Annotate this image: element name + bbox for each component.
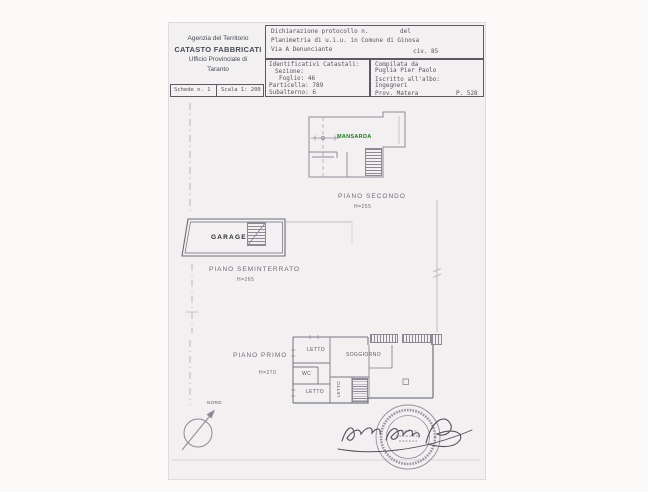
garage-stairs (247, 222, 266, 246)
scanned-cadastral-document: Agenzia del Territorio CATASTO FABBRICAT… (0, 0, 648, 492)
room-letto-vertical: LETTO (336, 381, 341, 397)
balcony-railing-left (370, 334, 398, 343)
alignment-line (433, 200, 441, 332)
piano-primo-height: H=270 (259, 370, 276, 376)
piano-secondo-height: H=255 (354, 204, 371, 210)
piano-seminterrato-label: PIANO SEMINTERRATO (209, 266, 300, 273)
boundary-dash-lines (186, 103, 198, 405)
balcony-railing-right (402, 334, 431, 343)
piano-primo-label: PIANO PRIMO (233, 352, 287, 359)
garage-room-label: GARAGE (211, 234, 247, 241)
mansarda-room-label: MANSARDA (337, 134, 371, 140)
mansarda-stairs (365, 148, 382, 176)
room-letto-top: LETTO (307, 347, 325, 353)
floorplan-drawing (0, 0, 648, 492)
compass-nord-label: NORD (207, 400, 222, 405)
piano-secondo-label: PIANO SECONDO (338, 193, 406, 200)
signature (338, 419, 472, 452)
balcony-end-pillar (431, 334, 442, 345)
mansarda-plan-outline (309, 112, 405, 177)
professional-stamp-icon (376, 405, 440, 469)
compass-icon (182, 410, 215, 451)
room-letto-bottom: LETTO (306, 389, 324, 395)
room-wc: WC (302, 371, 311, 377)
garage-plan-outline (182, 219, 352, 256)
room-soggiorno: SOGGIORNO (346, 352, 381, 358)
piano-primo-stairs (352, 378, 368, 402)
piano-seminterrato-height: H=265 (237, 277, 254, 283)
